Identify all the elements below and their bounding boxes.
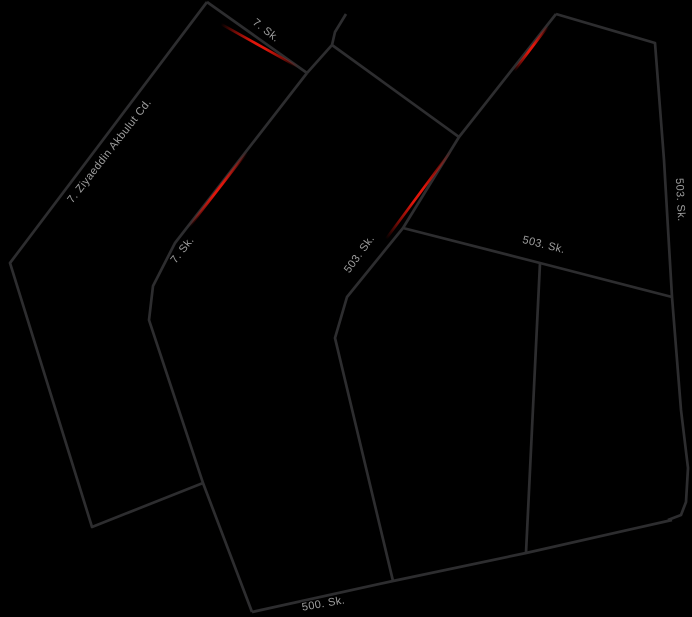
- street-label-503-sk-cross[interactable]: 503. Sk.: [521, 234, 566, 256]
- traffic-jam-503-lower: [386, 151, 451, 239]
- map-canvas[interactable]: 7. Sk.7. Ziyaeddin Akbulut Cd.7. Sk.503.…: [0, 0, 692, 617]
- traffic-jam-503-upper: [514, 26, 548, 71]
- street-label-7-sk-top[interactable]: 7. Sk.: [250, 17, 281, 45]
- road-503-sk-diagonal: [335, 14, 556, 581]
- road-connector-ne: [332, 45, 459, 137]
- road-mid-branch: [526, 263, 540, 553]
- road-7-sk-main: [149, 73, 307, 612]
- street-label-503-sk-diag[interactable]: 503. Sk.: [342, 233, 377, 275]
- street-label-500-sk[interactable]: 500. Sk.: [301, 594, 346, 613]
- street-label-ziyaeddin[interactable]: 7. Ziyaeddin Akbulut Cd.: [65, 97, 154, 206]
- road-500-sk: [252, 520, 672, 612]
- road-top-stub: [307, 14, 346, 73]
- traffic-jam-7-sk-main: [189, 152, 247, 227]
- traffic-layer: [189, 24, 548, 239]
- map-viewport[interactable]: 7. Sk.7. Ziyaeddin Akbulut Cd.7. Sk.503.…: [0, 0, 692, 617]
- street-label-503-sk-east[interactable]: 503. Sk.: [673, 178, 687, 222]
- roads-layer: [10, 2, 688, 612]
- road-503-sk-east: [556, 14, 688, 520]
- labels-layer: 7. Sk.7. Ziyaeddin Akbulut Cd.7. Sk.503.…: [65, 17, 687, 614]
